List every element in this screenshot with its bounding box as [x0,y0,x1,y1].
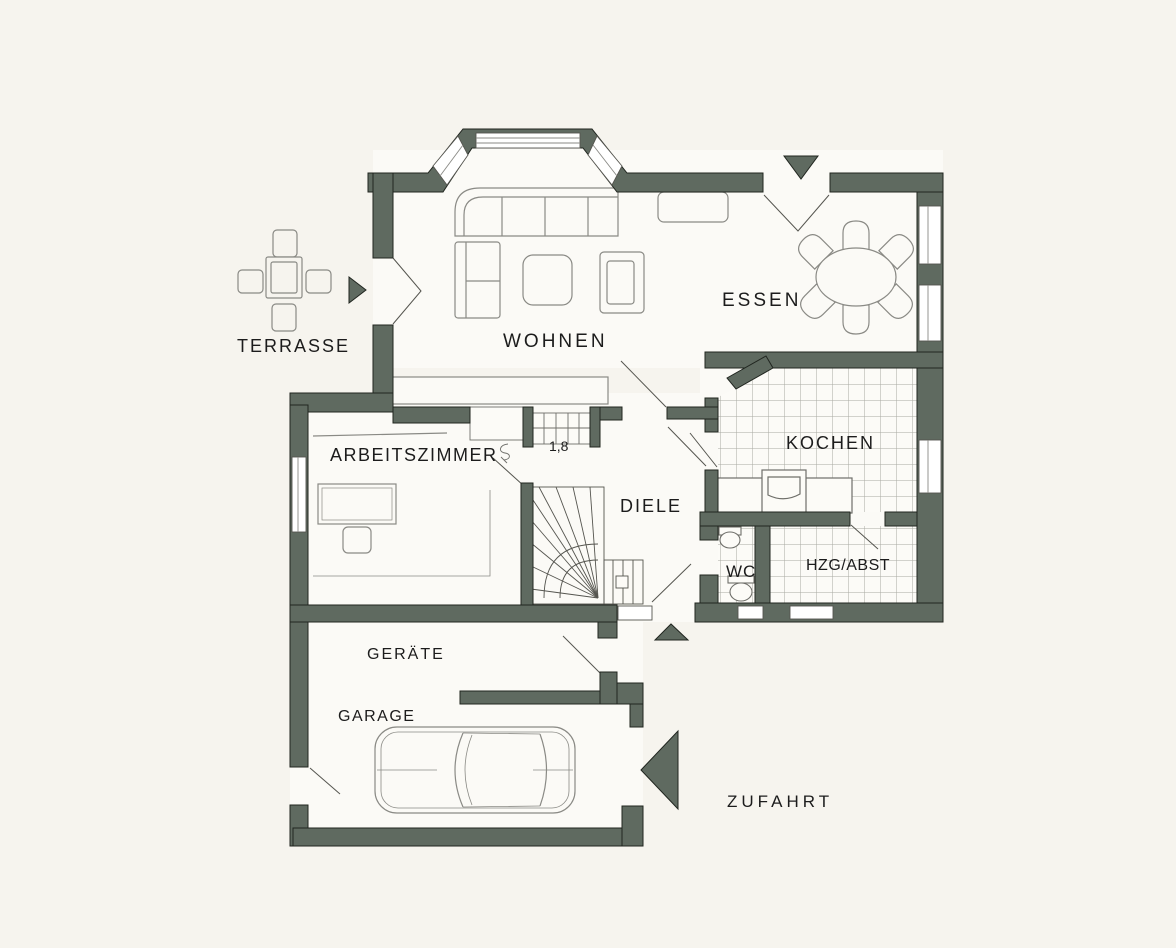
dining-chair [843,221,869,250]
dining-window-1 [919,206,941,264]
hall-kitchen-wall [667,407,718,419]
terrace-entry-arrow [349,277,366,303]
floor-plan-canvas: TERRASSE WOHNEN ESSEN ARBEITSZIMMER DIEL… [0,0,1176,948]
study-hall-wall [521,483,533,605]
stair-niche-measure: 1,8 [549,438,569,454]
dining-window-2 [919,285,941,341]
niche-stub-west [523,407,533,447]
label-arbeitszimmer: ARBEITSZIMMER [330,445,498,465]
kitchen-window [919,440,941,493]
porch-leg [630,704,643,727]
hzg-window [790,606,833,619]
living-south-wall [393,407,470,423]
label-garage: GARAGE [338,708,415,725]
label-terrasse: TERRASSE [237,336,350,356]
garage-door-jamb [622,806,643,846]
garage-south-wall [293,828,643,846]
north-wall-east-segment [830,173,943,192]
label-kochen: KOCHEN [786,433,875,453]
sink-bowl [768,477,800,499]
equipment-garage-wall [460,691,600,704]
kitchen-bath-wall-b [885,512,917,526]
label-wc: WC [726,562,756,581]
wc-window [738,606,763,619]
west-wall-living-lower [373,325,393,400]
study-window [292,457,306,532]
floor-plan-page: TERRASSE WOHNEN ESSEN ARBEITSZIMMER DIEL… [0,0,1176,948]
label-zufahrt: ZUFAHRT [727,792,833,811]
garage-entry-arrow [641,731,678,809]
terrace-chair [306,270,331,293]
dining-table [816,248,896,306]
wall-sideboard [388,377,608,404]
toilet [730,583,752,601]
wc-hzg-wall [755,526,770,603]
label-geraete: GERÄTE [367,645,445,663]
hall-south-wall [290,605,617,622]
main-entry-arrow [655,624,688,640]
terrace-set [238,230,331,331]
dining-chair [843,305,869,334]
terrace-chair [272,304,296,331]
label-essen: ESSEN [722,290,801,311]
label-hzg-abst: HZG/ABST [806,557,890,574]
newel-post [616,576,628,588]
bay-window-center [476,133,580,148]
entry-step-wall [598,622,617,638]
terrace-chair [238,270,263,293]
west-wall-living-upper [373,173,393,258]
terrace-chair [273,230,297,257]
closet-niche [470,407,523,440]
porch-block [600,672,617,704]
label-diele: DIELE [620,496,682,516]
label-wohnen: WOHNEN [503,331,608,352]
wash-basin [720,532,740,548]
dining-kitchen-wall [705,352,943,368]
hall-north-stub [600,407,622,420]
kitchen-west-lower [705,470,718,515]
porch-band [617,683,643,704]
front-door-leaf-open [618,606,652,620]
kitchen-bath-wall-a [700,512,850,526]
niche-stub-east [590,407,600,447]
dining-sideboard [658,192,728,222]
